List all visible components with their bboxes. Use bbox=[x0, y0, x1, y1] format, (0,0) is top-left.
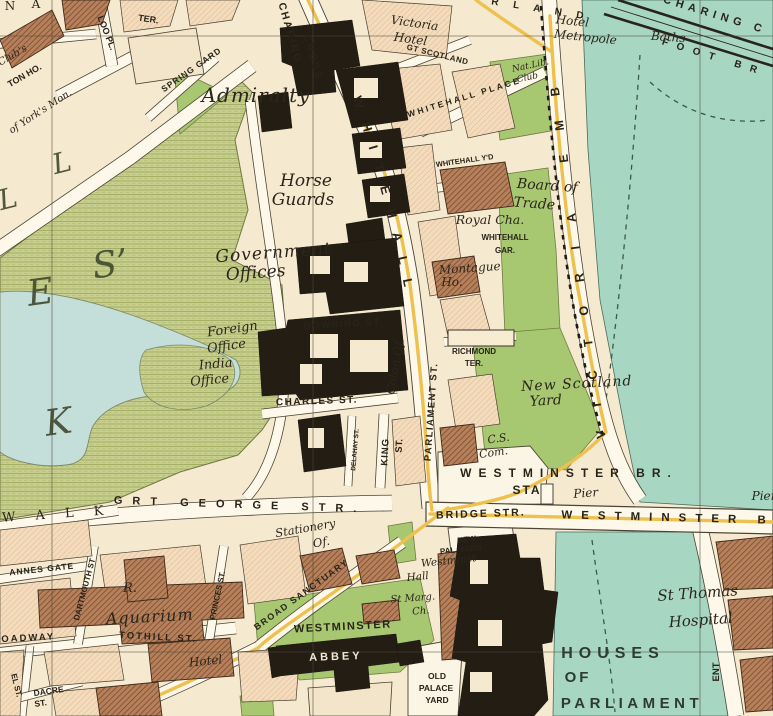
label-n: N bbox=[5, 0, 16, 13]
label-richmond: RICHMOND bbox=[452, 347, 496, 356]
label-s: S’ bbox=[90, 242, 131, 288]
label-st: ST. bbox=[394, 439, 406, 453]
label-ter: TER. bbox=[465, 359, 483, 368]
label-ch: Ch. bbox=[412, 605, 430, 617]
label-pier: Pier bbox=[572, 485, 600, 501]
richmond-terrace-building bbox=[448, 330, 514, 346]
label-houses: HOUSES bbox=[561, 645, 665, 662]
label-st: ST. bbox=[34, 697, 48, 709]
label-royal-cha: Royal Cha. bbox=[455, 212, 524, 227]
label-yard: YARD bbox=[425, 695, 448, 705]
label-r: R. bbox=[122, 581, 137, 596]
label-guards: Guards bbox=[272, 190, 335, 210]
label-of: OF bbox=[565, 669, 592, 686]
label-sta: STA bbox=[512, 483, 541, 497]
label-whitehall: WHITEHALL bbox=[481, 233, 528, 242]
label-horse: Horse bbox=[279, 171, 332, 191]
label-gar: GAR. bbox=[495, 246, 515, 255]
label-trade: Trade bbox=[513, 195, 556, 214]
label-admiralty: Admiralty bbox=[200, 83, 311, 107]
label-westminster-br: WESTMINSTER BR. bbox=[460, 466, 678, 480]
label-of: Of. bbox=[312, 534, 331, 551]
label-offices: Offices bbox=[225, 261, 286, 285]
label-e: E bbox=[24, 270, 57, 314]
label-ho: Ho. bbox=[440, 275, 462, 289]
label-parliament: PARLIAMENT bbox=[561, 695, 703, 712]
label-ent: ENT bbox=[711, 662, 722, 681]
label-pier: Pier bbox=[751, 489, 773, 503]
label-yard: Yard bbox=[529, 392, 562, 410]
label-abbey: ABBEY bbox=[309, 650, 363, 664]
label-hall: Hall bbox=[405, 570, 429, 584]
label-old: OLD bbox=[428, 671, 446, 681]
westminster-pier bbox=[541, 484, 553, 504]
vintage-westminster-map: NATER.LOO PL.TON HO.Club'sof York's Mon.… bbox=[0, 0, 773, 716]
label-a: A bbox=[31, 0, 41, 11]
label-king: KING bbox=[379, 438, 391, 466]
label-palace: PALACE bbox=[419, 683, 454, 693]
map-canvas[interactable]: NATER.LOO PL.TON HO.Club'sof York's Mon.… bbox=[0, 0, 773, 716]
